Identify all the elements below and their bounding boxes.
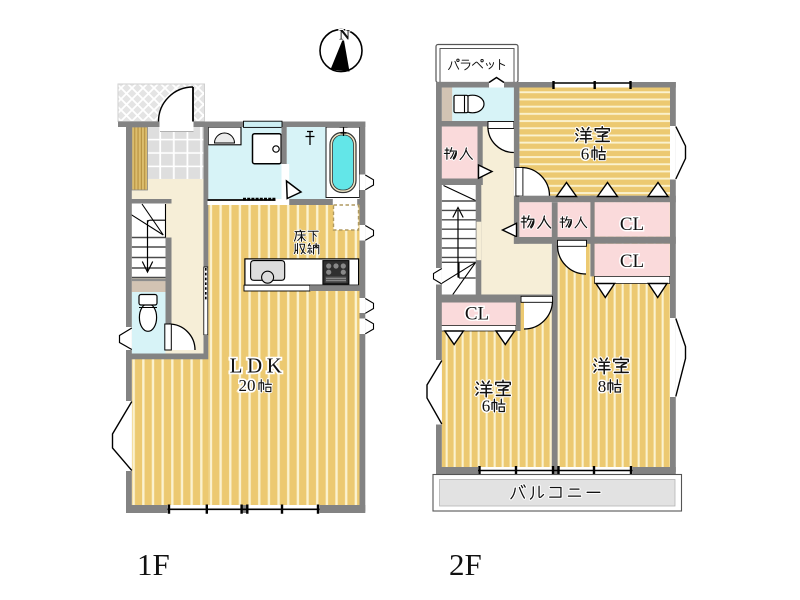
svg-text:LDK: LDK	[230, 354, 287, 378]
svg-text:CL: CL	[620, 214, 644, 235]
svg-text:6: 6	[581, 145, 590, 164]
svg-text:1F: 1F	[137, 547, 170, 582]
svg-text:CL: CL	[465, 304, 489, 325]
svg-text:6: 6	[482, 397, 491, 416]
svg-text:N: N	[339, 28, 350, 44]
svg-text:2F: 2F	[449, 547, 482, 582]
svg-text:20: 20	[239, 376, 256, 395]
svg-text:8: 8	[598, 377, 607, 396]
svg-text:CL: CL	[620, 251, 644, 272]
